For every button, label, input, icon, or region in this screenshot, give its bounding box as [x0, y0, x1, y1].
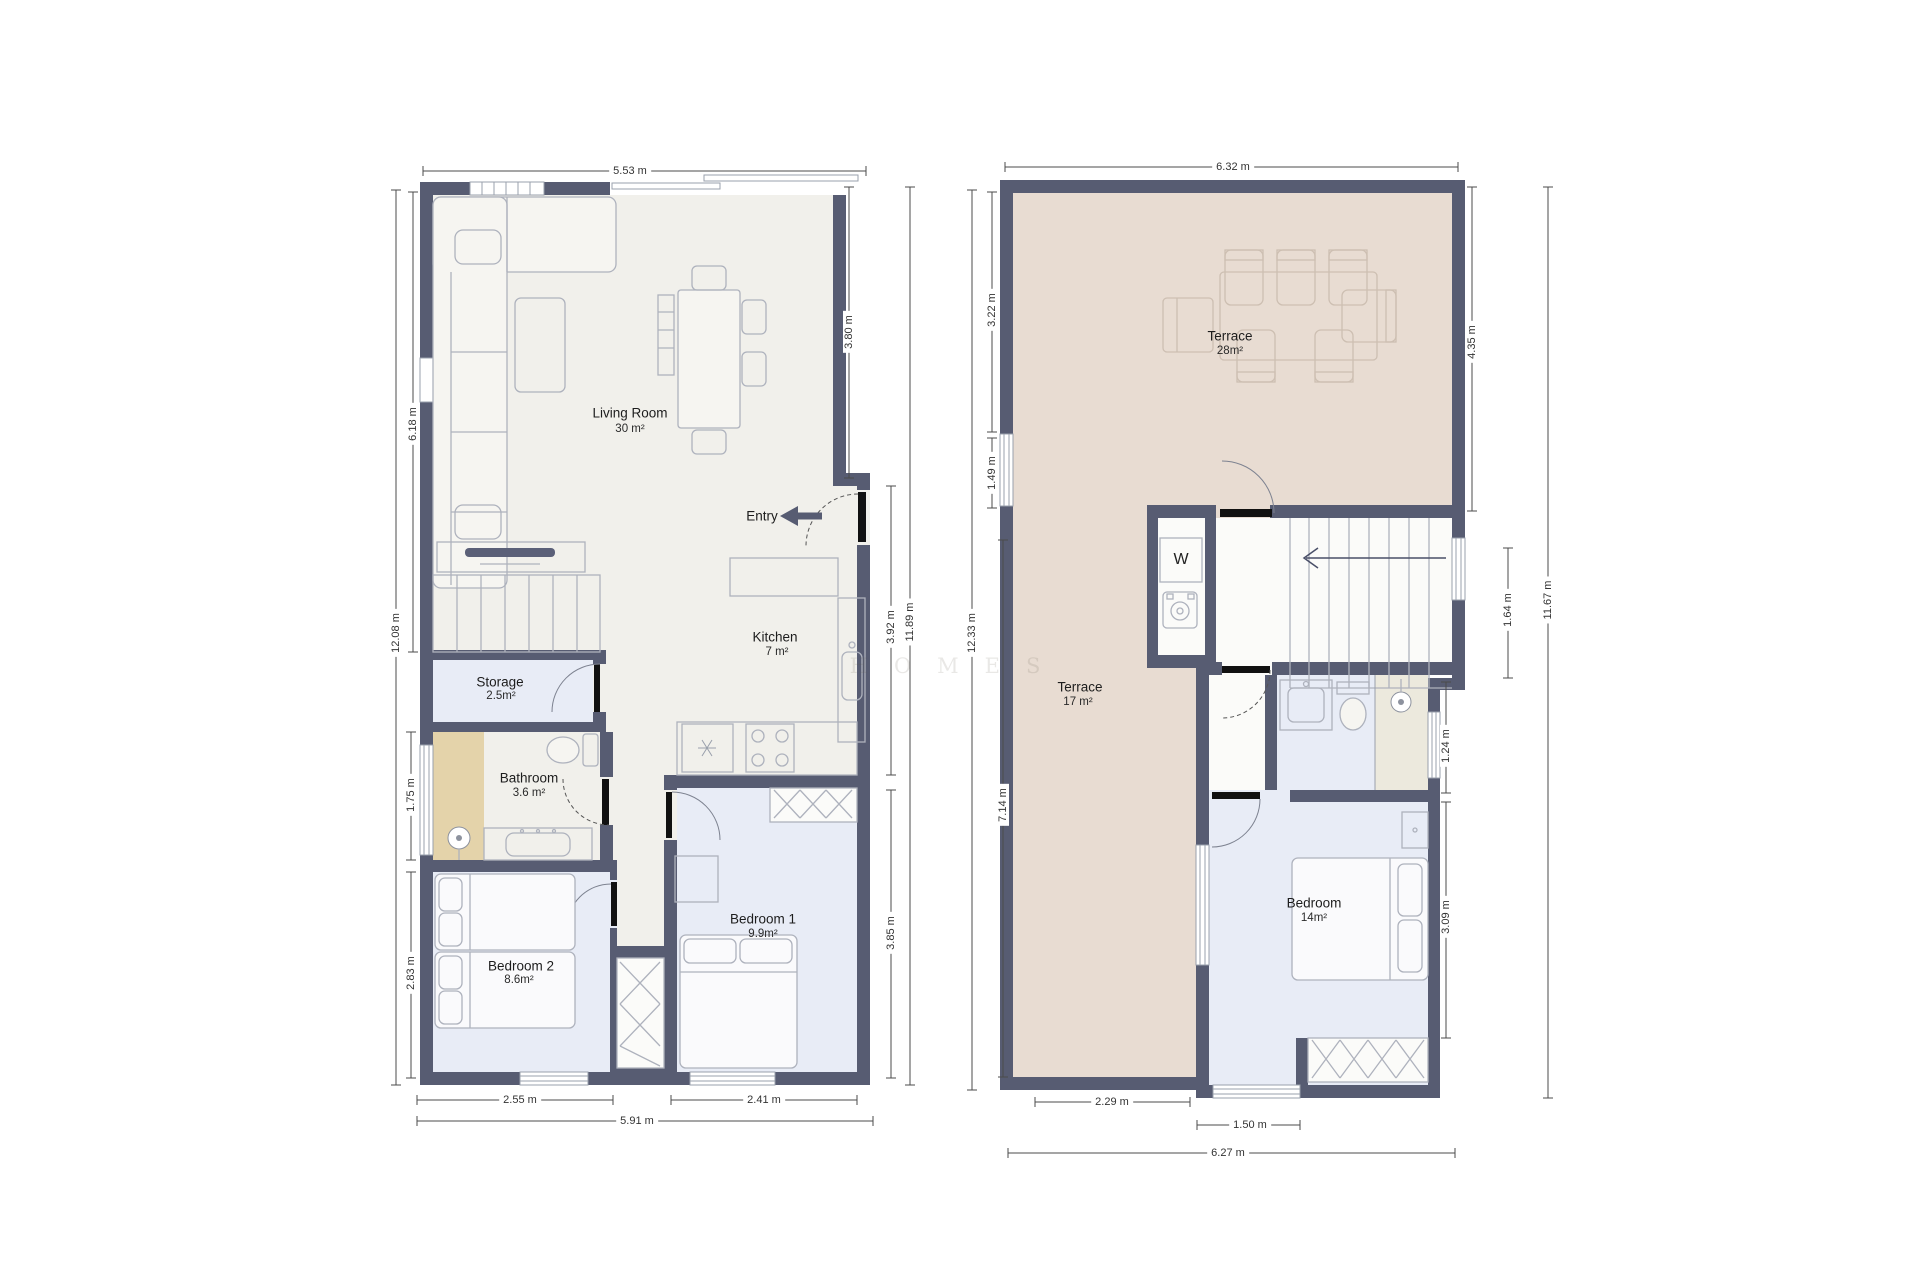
bedroom-label: Bedroom [1287, 896, 1342, 911]
kitchen-area: 7 m² [766, 646, 789, 658]
floor-plan-drawing [0, 0, 1920, 1280]
p2-dim-left-upper: 3.22 m [986, 289, 998, 331]
washer-label: W [1173, 551, 1188, 569]
living-room-area: 30 m² [615, 423, 644, 435]
terrace-side-label: Terrace [1057, 680, 1102, 695]
bathroom-label: Bathroom [500, 771, 559, 786]
p1-dim-right-bed1: 3.85 m [885, 912, 897, 954]
p1-dim-top: 5.53 m [609, 165, 651, 177]
bedroom1-label: Bedroom 1 [730, 912, 796, 927]
p2-dim-right-stairs: 1.64 m [1502, 589, 1514, 631]
p1-dim-left-upper: 6.18 m [407, 403, 419, 445]
p1-dim-right-kitchen: 3.92 m [885, 606, 897, 648]
p2-dim-right-bath: 1.24 m [1440, 725, 1452, 767]
p2-dim-top: 6.32 m [1212, 161, 1254, 173]
p1-dim-left-total: 12.08 m [390, 609, 402, 657]
p2-dim-right-total: 11.67 m [1542, 577, 1554, 624]
p2-dim-bottom-window: 1.50 m [1229, 1119, 1271, 1131]
bedroom2-area: 8.6m² [504, 974, 533, 986]
p1-dim-bottom-total: 5.91 m [616, 1115, 658, 1127]
p1-dim-right-total: 11.89 m [904, 599, 916, 646]
living-room-label: Living Room [592, 406, 667, 421]
p2-dim-left-total: 12.33 m [966, 609, 978, 657]
kitchen-label: Kitchen [752, 630, 797, 645]
bedroom1-area: 9.9m² [748, 928, 777, 940]
floor-plan-page: { "plan1": { "rooms": { "living": {"name… [0, 0, 1920, 1280]
terrace-main-label: Terrace [1207, 329, 1252, 344]
p1-dim-bottom-bed2: 2.55 m [499, 1094, 541, 1106]
p2-dim-right-bedroom: 3.09 m [1440, 896, 1452, 938]
p2-dim-bottom-total: 6.27 m [1207, 1147, 1249, 1159]
p1-dim-left-bed2: 2.83 m [405, 952, 417, 994]
p2-dim-left-lower: 7.14 m [997, 784, 1009, 826]
p1-dim-right-upper: 3.80 m [843, 311, 855, 353]
terrace-main-area: 28m² [1217, 345, 1243, 357]
p2-dim-bottom-terrace: 2.29 m [1091, 1096, 1133, 1108]
terrace-side-area: 17 m² [1063, 696, 1092, 708]
bedroom2-label: Bedroom 2 [488, 959, 554, 974]
p1-dim-bottom-bed1: 2.41 m [743, 1094, 785, 1106]
bedroom-area: 14m² [1301, 912, 1327, 924]
p2-dim-left-mid: 1.49 m [986, 452, 998, 494]
watermark: HOMES [850, 654, 1067, 678]
p2-dim-right-terrace: 4.35 m [1466, 321, 1478, 363]
entry-label: Entry [746, 509, 778, 524]
bathroom-area: 3.6 m² [513, 787, 546, 799]
p1-dim-left-bath: 1.75 m [405, 774, 417, 816]
storage-area: 2.5m² [486, 690, 515, 702]
storage-label: Storage [476, 675, 523, 690]
